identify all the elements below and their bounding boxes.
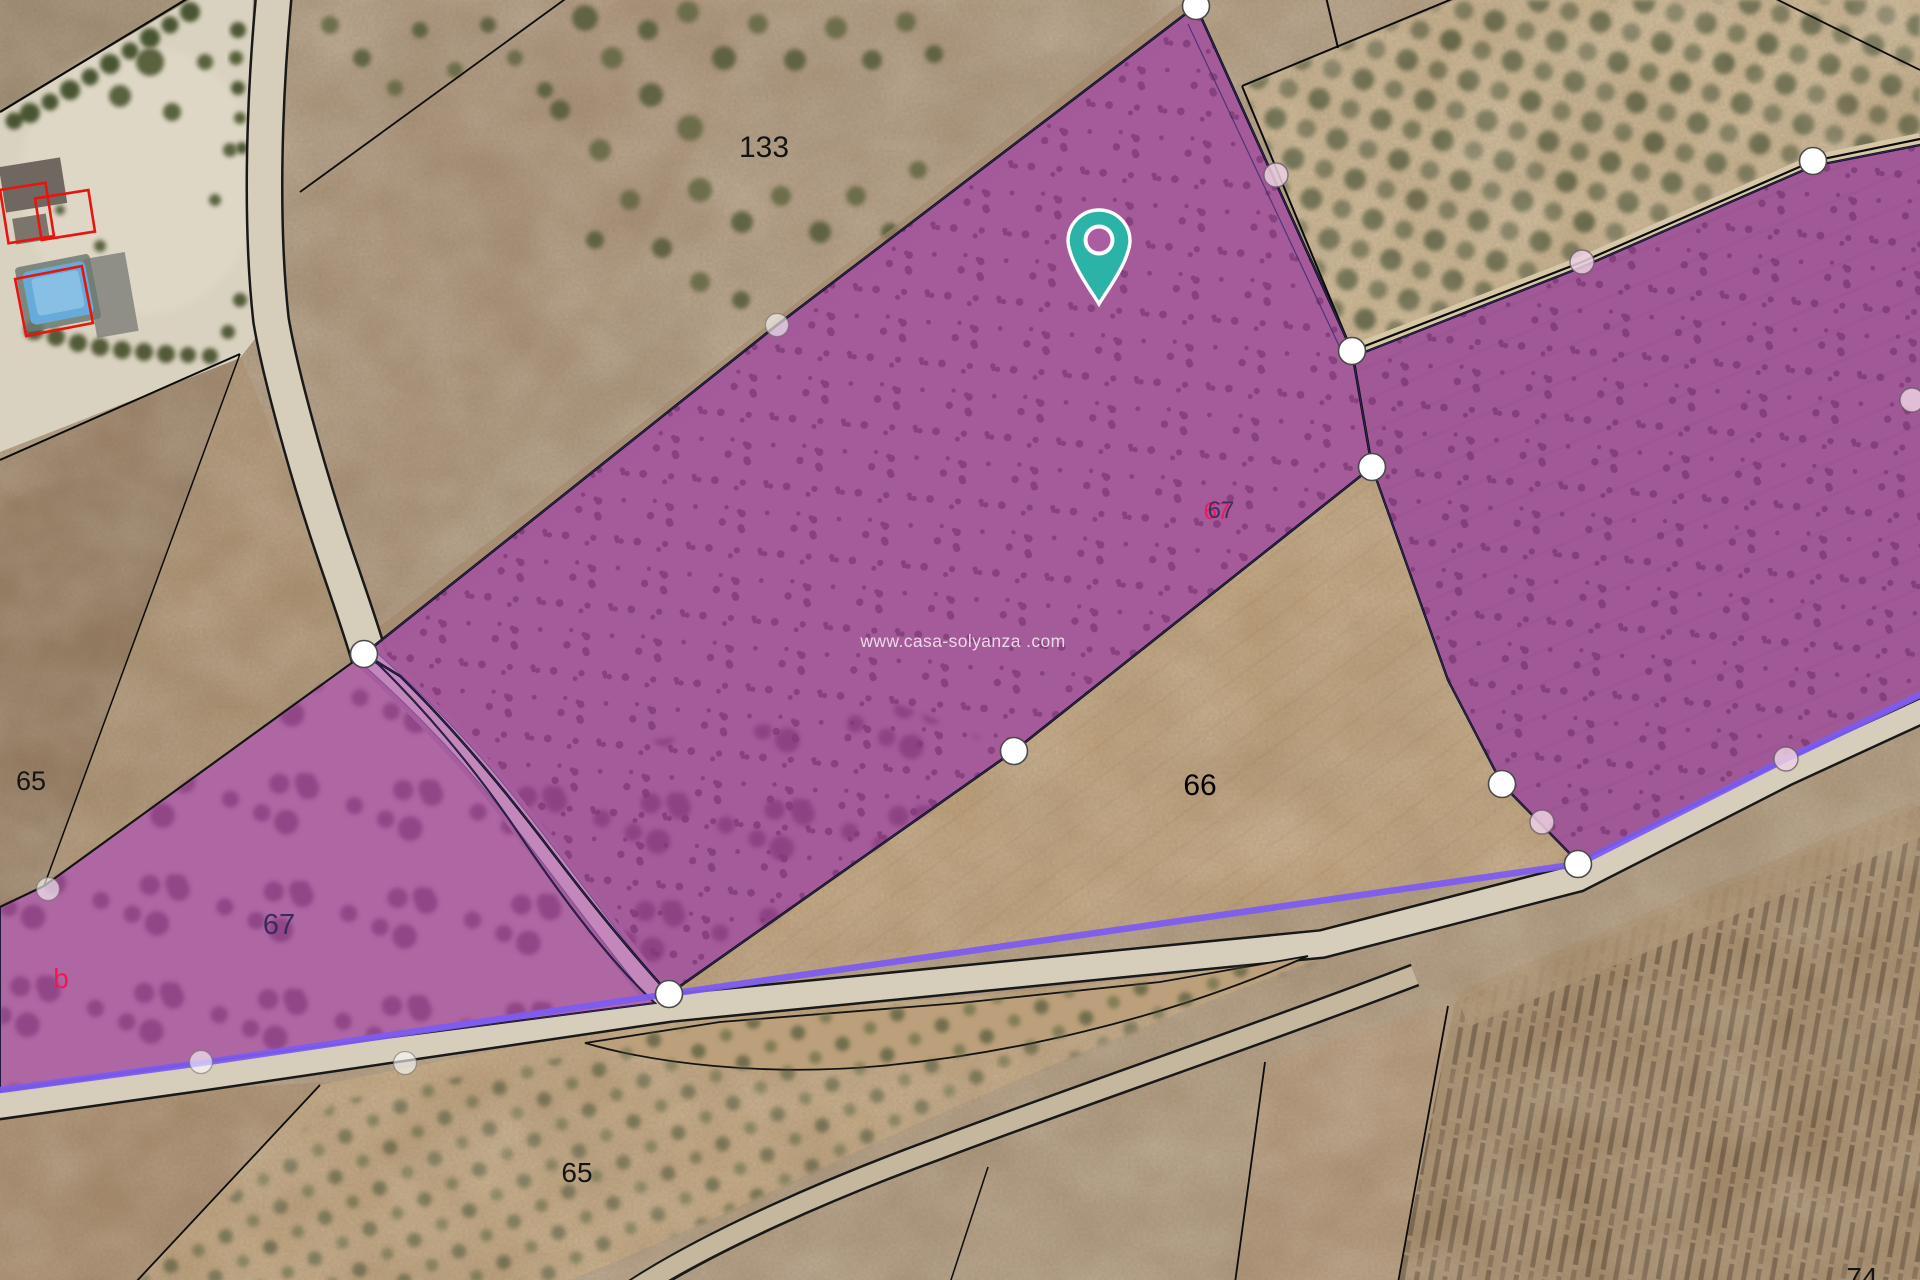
- svg-text:65: 65: [16, 766, 46, 796]
- svg-text:b: b: [53, 963, 69, 994]
- svg-text:67: 67: [1208, 497, 1235, 524]
- svg-text:66: 66: [1183, 769, 1216, 802]
- svg-text:133: 133: [739, 131, 789, 164]
- svg-text:www.casa-solyanza .com: www.casa-solyanza .com: [859, 631, 1065, 651]
- svg-text:67: 67: [263, 909, 295, 941]
- svg-text:65: 65: [561, 1157, 592, 1188]
- svg-text:74: 74: [1846, 1262, 1877, 1280]
